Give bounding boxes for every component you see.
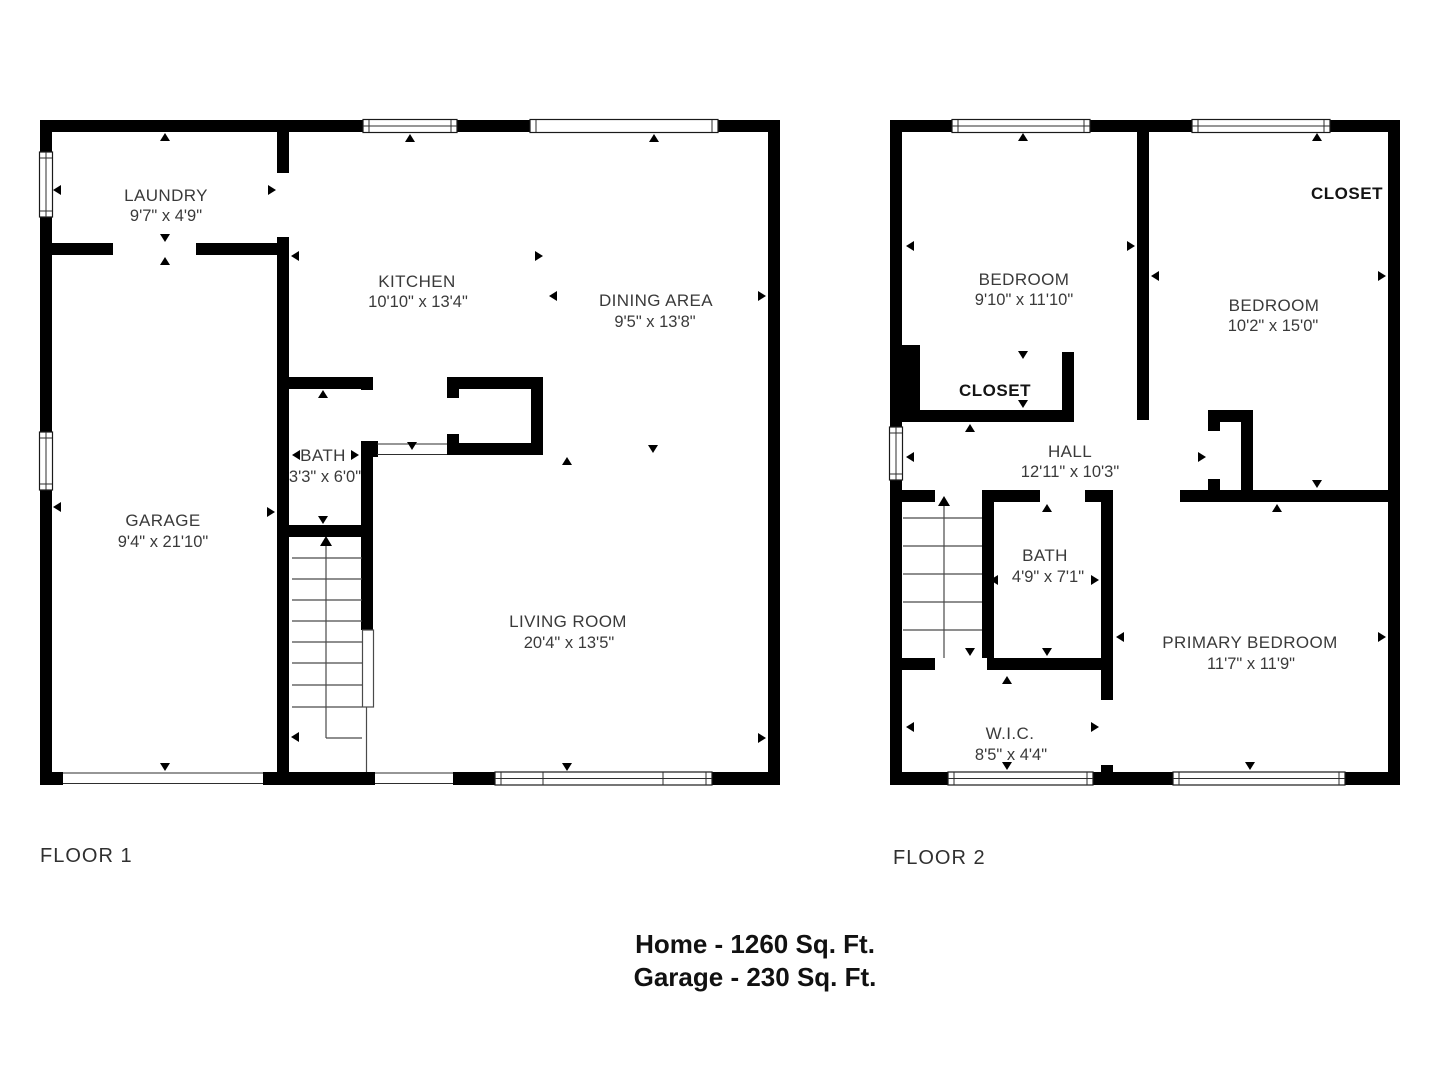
stairs-up-arrow-icon — [320, 536, 332, 546]
room-label-bedroom2: BEDROOM — [1229, 296, 1320, 315]
room-label-bedroom1: BEDROOM — [979, 270, 1070, 289]
floor2-plan: BEDROOM 9'10" x 11'10" BEDROOM 10'2" x 1… — [890, 120, 1401, 786]
window-icon — [952, 120, 1090, 133]
room-label-garage: GARAGE — [125, 511, 200, 530]
room-dims-garage: 9'4" x 21'10" — [118, 533, 209, 551]
stairs-up-arrow-icon — [938, 496, 950, 506]
window-icon — [40, 152, 53, 217]
room-dims-bath1: 3'3" x 6'0" — [289, 468, 361, 486]
window-icon — [1173, 772, 1345, 785]
area-summary: Home - 1260 Sq. Ft. Garage - 230 Sq. Ft. — [634, 928, 877, 994]
room-label-closet-bedroom2: CLOSET — [1311, 184, 1383, 203]
room-dims-bedroom2: 10'2" x 15'0" — [1228, 317, 1319, 335]
window-icon — [363, 120, 457, 133]
room-dims-hall: 12'11" x 10'3" — [1021, 463, 1120, 481]
garage-area-text: Garage - 230 Sq. Ft. — [634, 961, 877, 994]
room-label-closet-bedroom1: CLOSET — [959, 381, 1031, 400]
room-dims-primary: 11'7" x 11'9" — [1207, 655, 1295, 673]
room-label-bath2: BATH — [1022, 546, 1068, 565]
floor1-title: FLOOR 1 — [40, 845, 133, 868]
home-area-text: Home - 1260 Sq. Ft. — [634, 928, 877, 961]
room-label-bath1: BATH — [300, 446, 346, 465]
room-dims-bath2: 4'9" x 7'1" — [1012, 568, 1084, 586]
window-icon — [530, 120, 718, 133]
room-label-laundry: LAUNDRY — [124, 186, 208, 205]
window-icon — [1192, 120, 1330, 133]
floor1-room-labels: LAUNDRY 9'7" x 4'9" KITCHEN 10'10" x 13'… — [118, 186, 713, 652]
floor2-windows — [890, 120, 1346, 786]
window-icon — [495, 772, 712, 785]
floor1-plan: LAUNDRY 9'7" x 4'9" KITCHEN 10'10" x 13'… — [40, 120, 781, 786]
room-label-living: LIVING ROOM — [509, 612, 627, 631]
window-icon — [40, 432, 53, 490]
room-label-wic: W.I.C. — [986, 724, 1035, 743]
room-label-dining: DINING AREA — [599, 291, 713, 310]
room-dims-kitchen: 10'10" x 13'4" — [368, 293, 468, 311]
floor2-interior-walls — [890, 132, 1388, 785]
floorplan-canvas: LAUNDRY 9'7" x 4'9" KITCHEN 10'10" x 13'… — [0, 0, 1440, 1080]
room-label-hall: HALL — [1048, 442, 1092, 461]
floor2-title: FLOOR 2 — [893, 847, 986, 870]
window-icon — [890, 427, 903, 480]
room-dims-bedroom1: 9'10" x 11'10" — [975, 291, 1074, 309]
floor1-garage-door-opening — [63, 772, 263, 785]
room-dims-wic: 8'5" x 4'4" — [975, 746, 1047, 764]
floor1-measure-markers — [53, 133, 766, 771]
room-label-primary: PRIMARY BEDROOM — [1162, 633, 1337, 652]
floor2-room-labels: BEDROOM 9'10" x 11'10" BEDROOM 10'2" x 1… — [959, 184, 1383, 764]
room-dims-dining: 9'5" x 13'8" — [614, 313, 695, 331]
floor2-staircase — [903, 496, 982, 658]
room-dims-laundry: 9'7" x 4'9" — [130, 207, 202, 225]
floor1-entry-opening — [375, 772, 453, 785]
room-dims-living: 20'4" x 13'5" — [524, 634, 615, 652]
window-icon — [948, 772, 1093, 785]
room-label-kitchen: KITCHEN — [378, 272, 455, 291]
